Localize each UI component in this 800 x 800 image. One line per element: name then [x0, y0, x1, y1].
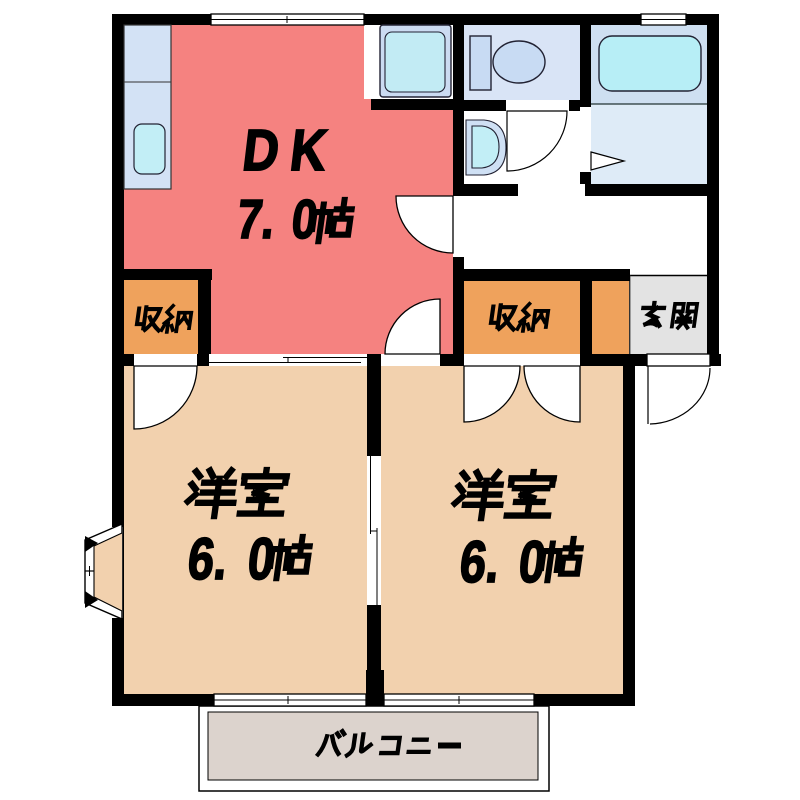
svg-text:DK: DK: [239, 118, 342, 182]
svg-text:7.: 7.: [234, 188, 279, 250]
svg-text:6.: 6.: [185, 526, 232, 592]
svg-text:6.: 6.: [457, 529, 504, 595]
